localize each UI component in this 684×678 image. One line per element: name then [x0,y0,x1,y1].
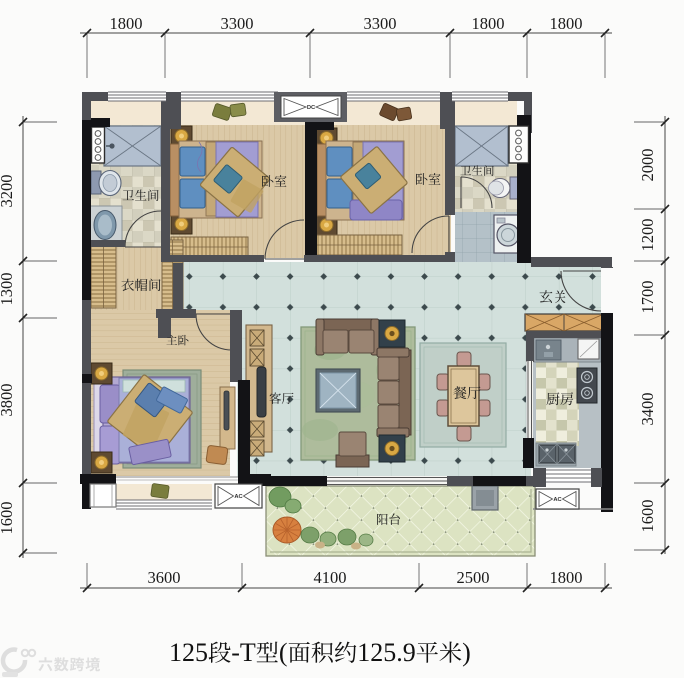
svg-text:-T: -T [231,638,256,667]
svg-text:AC: AC [553,497,562,503]
svg-text:125: 125 [169,638,208,667]
svg-text:3200: 3200 [0,175,16,208]
svg-text:2500: 2500 [457,568,490,587]
svg-text:3400: 3400 [638,393,657,426]
svg-text:3300: 3300 [364,14,397,33]
svg-text:4100: 4100 [314,568,347,587]
svg-text:): ) [462,638,471,667]
svg-text:3300: 3300 [221,14,254,33]
svg-text:DC: DC [307,105,316,111]
svg-text:2000: 2000 [638,149,657,182]
svg-text:1800: 1800 [472,14,505,33]
svg-text:(: ( [279,638,288,667]
svg-text:1800: 1800 [550,14,583,33]
svg-text:1800: 1800 [550,568,583,587]
svg-text:125.9: 125.9 [357,638,416,667]
svg-text:3800: 3800 [0,384,16,417]
svg-text:1600: 1600 [0,502,16,535]
svg-text:3600: 3600 [148,568,181,587]
svg-text:1600: 1600 [638,500,657,533]
svg-text:1300: 1300 [0,273,16,306]
svg-text:1800: 1800 [110,14,143,33]
svg-text:1200: 1200 [638,219,657,252]
svg-text:1700: 1700 [638,281,657,314]
svg-text:AC: AC [234,494,243,500]
